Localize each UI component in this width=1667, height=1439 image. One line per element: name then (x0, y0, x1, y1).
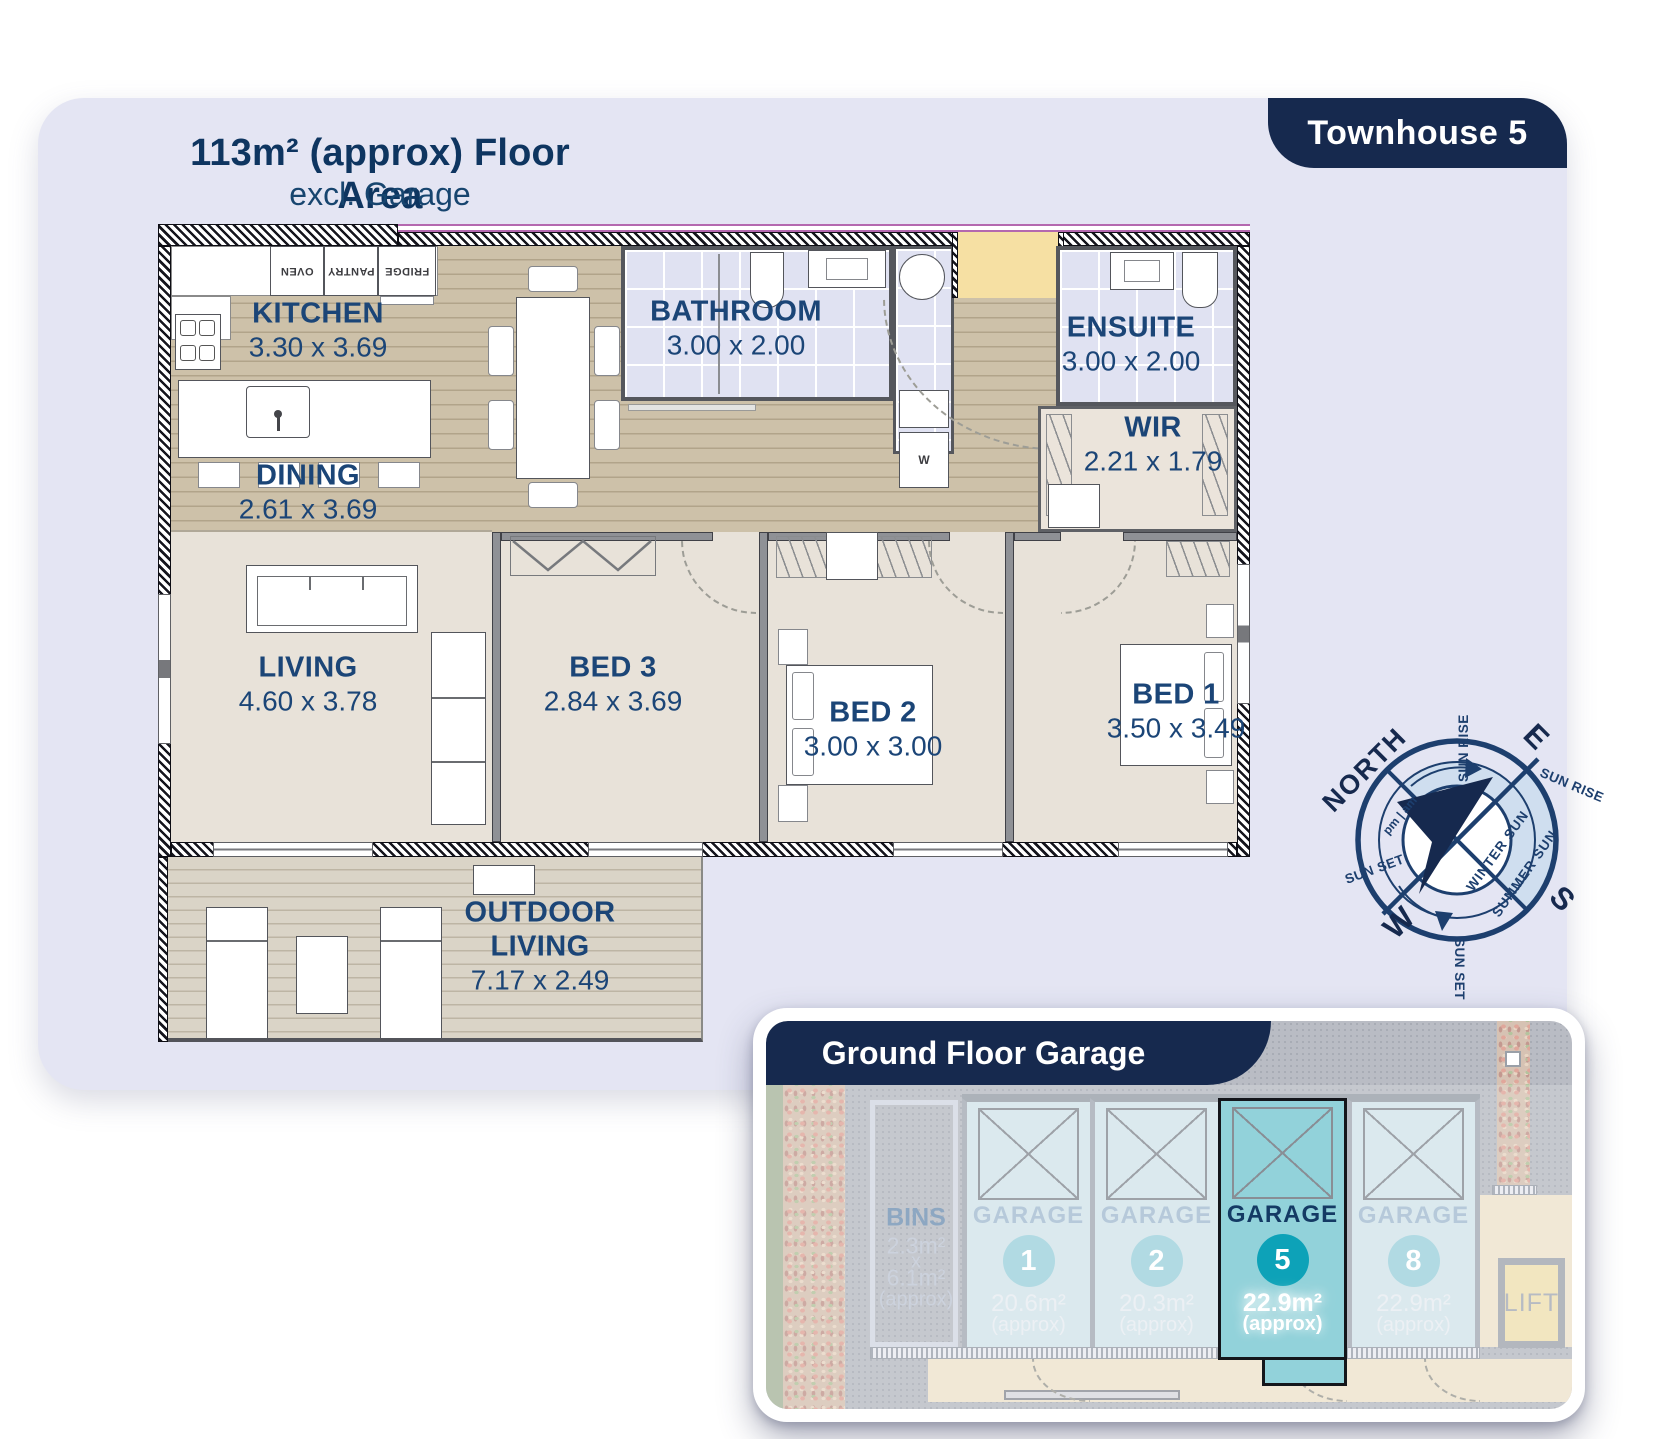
garage-stall-5-highlighted: GARAGE 5 22.9m² (approx) (1218, 1098, 1347, 1360)
wardrobe-slider (826, 532, 878, 580)
washer-label: W (918, 453, 929, 467)
garage-stall-1: GARAGE 1 20.6m² (approx) (962, 1098, 1090, 1347)
wall (1492, 1185, 1537, 1195)
drain-pit (1505, 1051, 1521, 1067)
entry-porch (958, 232, 1058, 298)
chair (528, 482, 578, 508)
deck-step (473, 865, 535, 895)
chair (594, 400, 620, 450)
wall (870, 1347, 1480, 1359)
bins-label: BINS (886, 1204, 946, 1233)
sun-set-left-label: SUN SET (1343, 851, 1407, 886)
garage-inset: GARAGE 1 20.6m² (approx) GARAGE 2 20.3m²… (753, 1008, 1585, 1422)
cooktop (175, 314, 221, 370)
party-wall-line (398, 224, 1250, 232)
counter-ledge (380, 296, 434, 305)
room-label-wir: WIR2.21 x 1.79 (1084, 410, 1223, 477)
floor-area-subtitle: excl. Garage (165, 176, 595, 213)
tv-cabinet (431, 632, 486, 825)
garage-door-cross-icon (1106, 1108, 1207, 1200)
fridge: FRIDGE (378, 246, 436, 296)
wall (158, 857, 168, 1042)
dining-table (516, 297, 590, 479)
garage-inset-title: Ground Floor Garage (822, 1035, 1146, 1072)
wall (492, 532, 501, 842)
sofa (246, 565, 418, 633)
sun-set-bottom-label: SUN SET (1452, 938, 1467, 1000)
wall (158, 224, 398, 246)
window (893, 842, 1003, 857)
ensuite-toilet (1182, 252, 1218, 308)
door-arc (928, 541, 1003, 614)
wall (158, 246, 171, 857)
basin (826, 258, 868, 280)
chair (528, 266, 578, 292)
window (158, 594, 171, 744)
compass-south-label: S (1543, 879, 1582, 918)
garage-door-cross-icon (1363, 1108, 1464, 1200)
wir-drawers (1048, 484, 1100, 528)
stool (378, 462, 420, 488)
compass-rose: NORTH E S W SUN RISE SUN RISE SUN SET SU… (1305, 688, 1625, 1018)
garage-stall-2: GARAGE 2 20.3m² (approx) (1090, 1098, 1218, 1347)
stool (198, 462, 240, 488)
sunset-arrow-icon (1435, 911, 1453, 931)
townhouse-badge-label: Townhouse 5 (1307, 114, 1527, 153)
stall-label: GARAGE (1095, 1202, 1218, 1230)
garage-stall-5-extension (1262, 1360, 1347, 1386)
room-label-living: LIVING4.60 x 3.78 (239, 650, 378, 717)
ensuite-basin (1124, 260, 1160, 282)
oven: OVEN (270, 246, 324, 296)
townhouse-badge: Townhouse 5 (1268, 98, 1567, 168)
room-label-bathroom: BATHROOM3.00 x 2.00 (650, 294, 822, 361)
lift-room: LIFT (1498, 1258, 1565, 1348)
garage-door-cross-icon (1232, 1107, 1333, 1199)
bedside-table (1206, 770, 1234, 804)
entry-door-arc (883, 298, 1053, 450)
wall (1123, 532, 1237, 541)
window (213, 842, 373, 857)
wall (1237, 246, 1250, 857)
laundry-tub (899, 254, 945, 300)
stall-approx: (approx) (967, 1314, 1090, 1337)
chair (488, 400, 514, 450)
stall-number-badge: 1 (1003, 1235, 1055, 1287)
chair (594, 326, 620, 376)
grass-strip (766, 1085, 783, 1409)
wall (759, 532, 768, 842)
stall-label: GARAGE (967, 1202, 1090, 1230)
wardrobe-zigzag (510, 536, 656, 576)
door-arc (1061, 541, 1136, 614)
compass-east-label: E (1517, 717, 1556, 756)
bedside-table (778, 629, 808, 665)
garage-stall-8: GARAGE 8 22.9m² (approx) (1347, 1098, 1480, 1347)
garage-door-cross-icon (978, 1108, 1079, 1200)
room-label-kitchen: KITCHEN3.30 x 3.69 (249, 296, 388, 363)
bedside-table (1206, 604, 1234, 638)
door-arc (1032, 1359, 1090, 1402)
room-label-bed1: BED 13.50 x 3.49 (1107, 677, 1246, 744)
door-arc (681, 541, 756, 614)
lounger (206, 907, 268, 1039)
pantry: PANTRY (324, 246, 378, 296)
stall-approx: (approx) (1095, 1314, 1218, 1337)
room-label-dining: DINING2.61 x 3.69 (239, 458, 378, 525)
sun-rise-top-label: SUN RISE (1456, 714, 1471, 782)
stall-approx: (approx) (1352, 1314, 1475, 1337)
lift-label: LIFT (1504, 1289, 1559, 1318)
bins-approx: (approx) (879, 1289, 953, 1312)
floor-junction (171, 530, 492, 532)
corridor-bench (1004, 1390, 1180, 1400)
bench (628, 404, 756, 411)
room-label-bed2: BED 23.00 x 3.00 (804, 695, 943, 762)
outdoor-table (296, 936, 348, 1014)
garage-plan: GARAGE 1 20.6m² (approx) GARAGE 2 20.3m²… (766, 1021, 1572, 1409)
stall-number-badge: 5 (1257, 1234, 1309, 1286)
stall-label: GARAGE (1352, 1202, 1475, 1230)
bedside-table (778, 785, 808, 822)
garden-bed (783, 1085, 845, 1409)
wardrobe-rail (1166, 541, 1230, 577)
stall-label: GARAGE (1221, 1201, 1344, 1229)
garden-bed (1497, 1021, 1530, 1185)
wall (1005, 532, 1014, 842)
wall (952, 232, 958, 298)
floor-plan: W (158, 224, 1250, 1046)
faucet-stem (277, 417, 280, 431)
lounger (380, 907, 442, 1039)
page: Townhouse 5 113m² (approx) Floor Area ex… (0, 0, 1667, 1439)
stall-approx: (approx) (1221, 1313, 1344, 1336)
garage-inset-header: Ground Floor Garage (766, 1021, 1271, 1085)
wall (1014, 532, 1061, 541)
window (1118, 842, 1228, 857)
window (588, 842, 703, 857)
room-label-outdoor-living: OUTDOORLIVING7.17 x 2.49 (464, 895, 615, 996)
room-label-bed3: BED 32.84 x 3.69 (544, 650, 683, 717)
room-label-ensuite: ENSUITE3.00 x 2.00 (1062, 310, 1201, 377)
chair (488, 326, 514, 376)
stall-number-badge: 2 (1131, 1235, 1183, 1287)
stall-number-badge: 8 (1388, 1235, 1440, 1287)
bins-area2: 6.1m² (887, 1265, 946, 1292)
door-arc (1424, 1359, 1480, 1402)
wall (398, 232, 1250, 246)
